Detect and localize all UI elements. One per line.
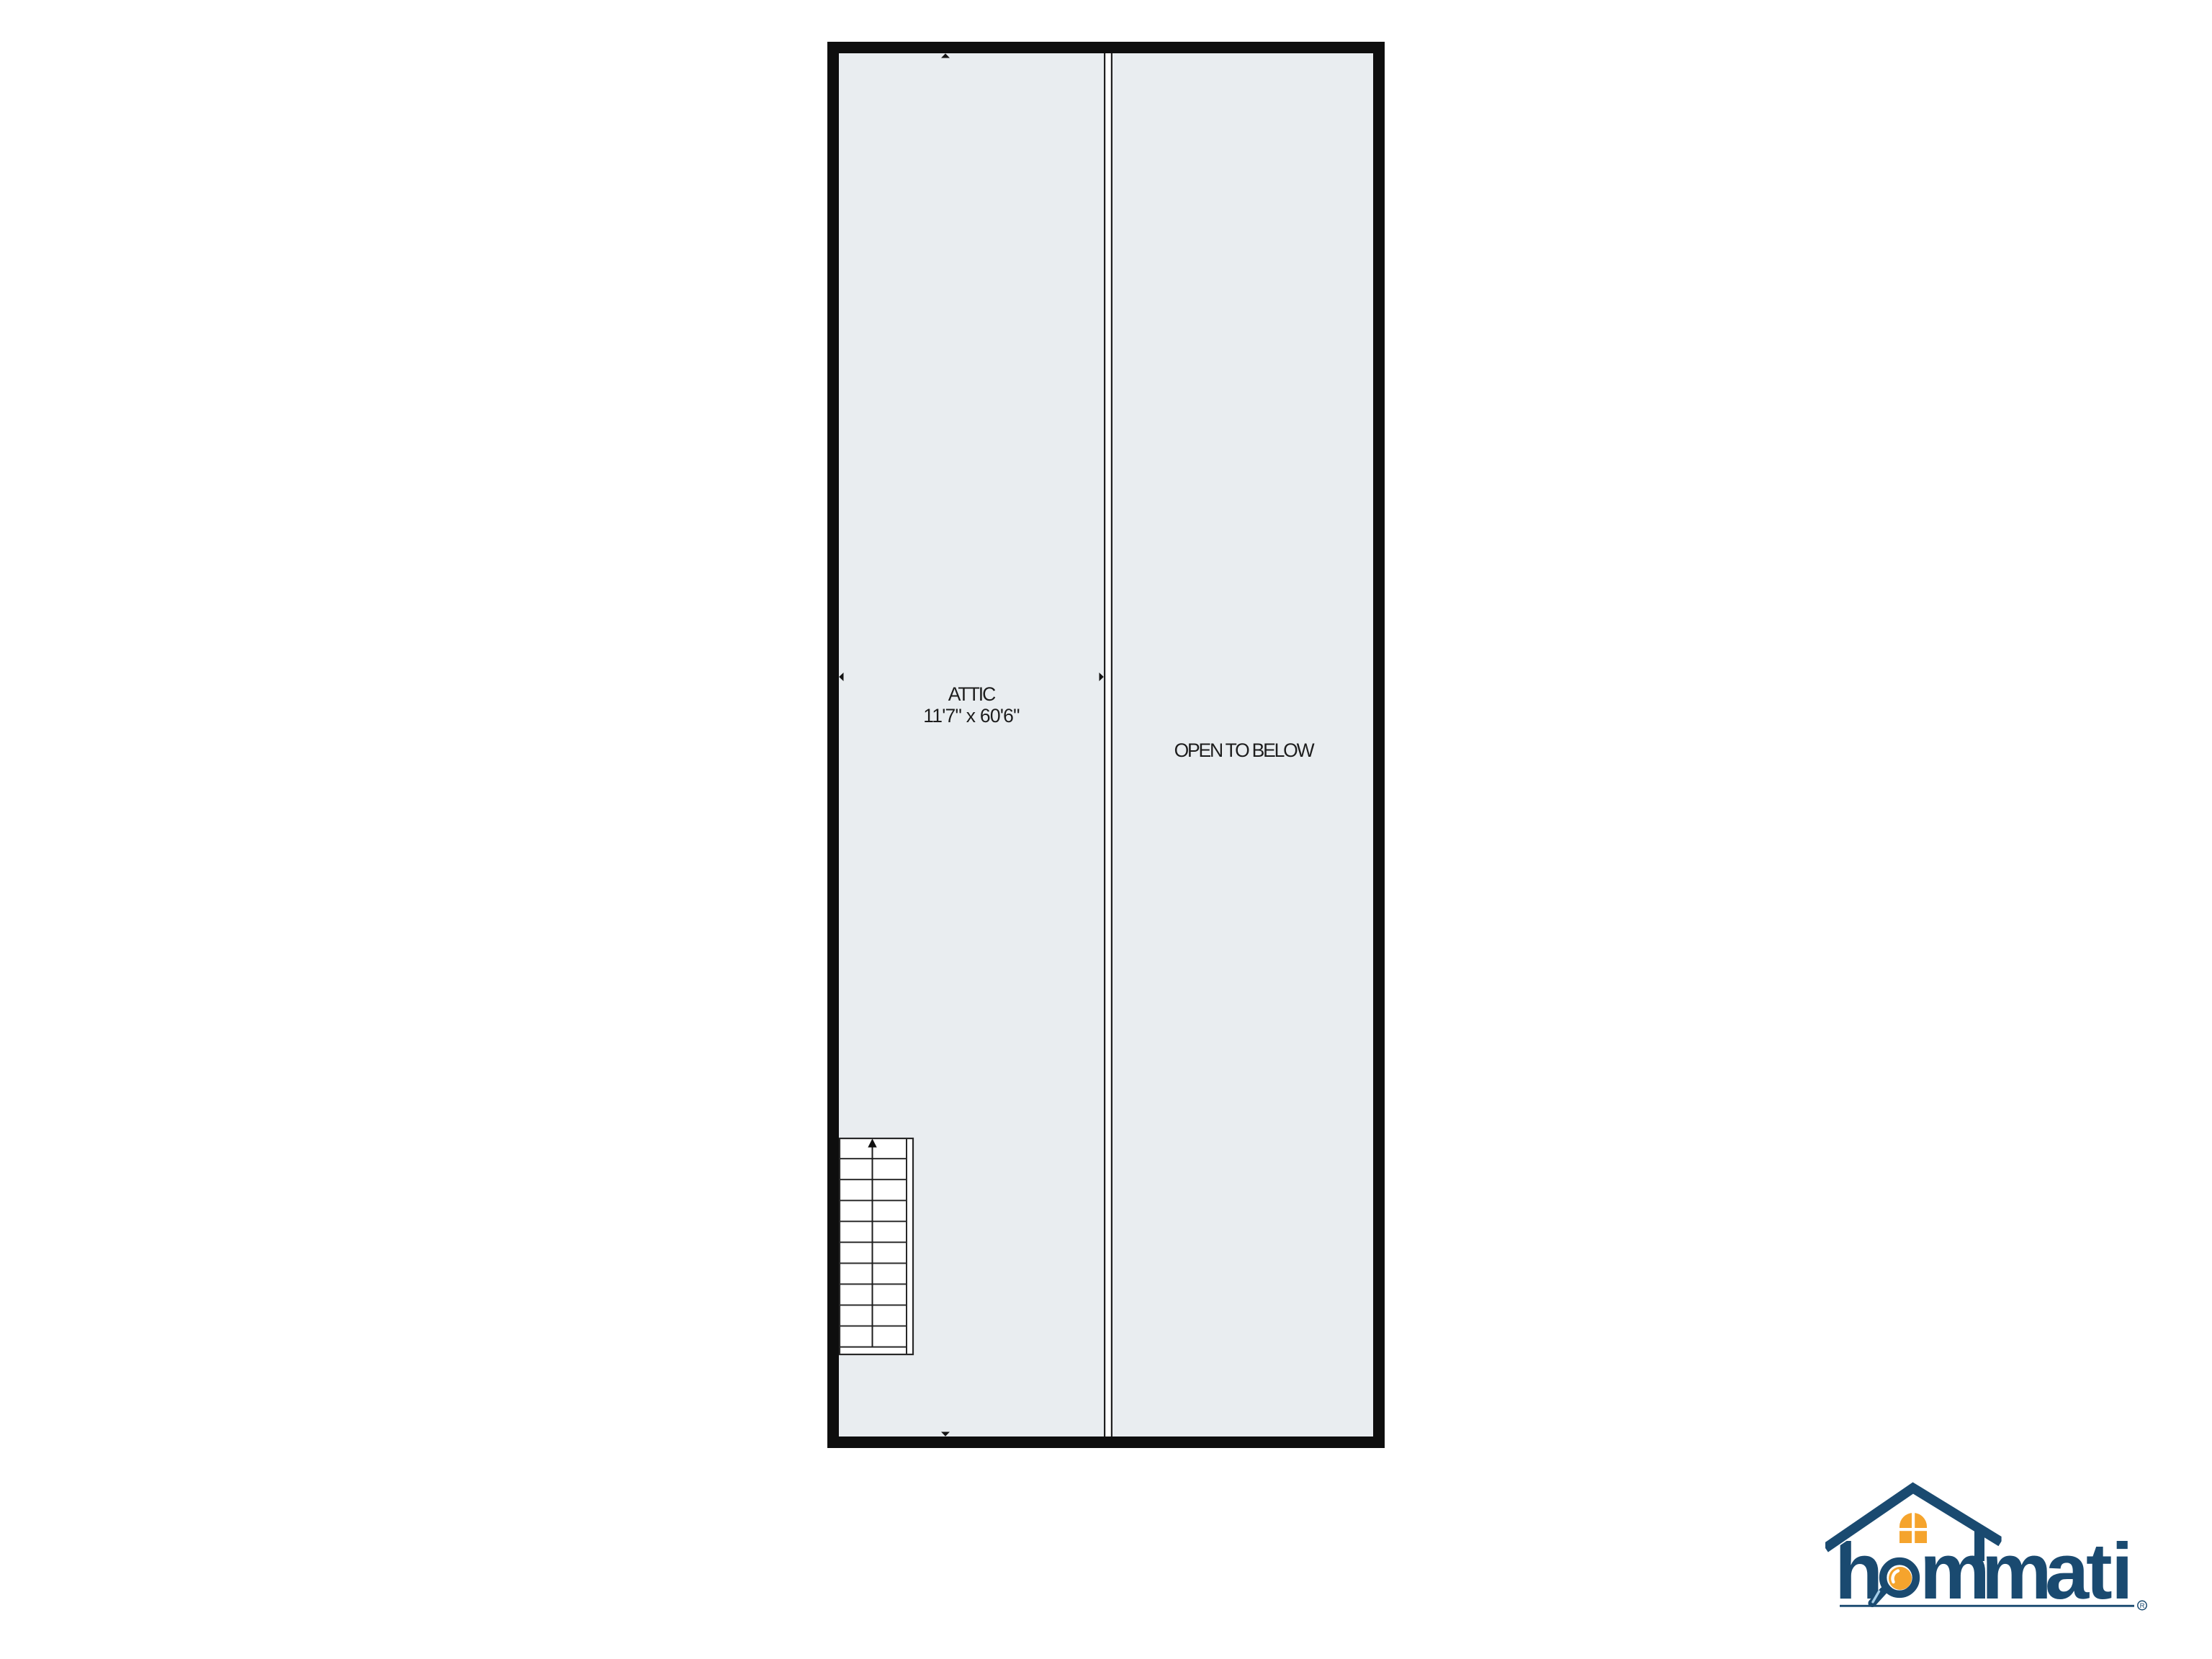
svg-text:i: i (2111, 1527, 2134, 1616)
svg-text:t: t (2086, 1527, 2113, 1616)
svg-text:R: R (2140, 1602, 2145, 1610)
svg-text:a: a (2045, 1527, 2090, 1616)
svg-text:mm: mm (1920, 1527, 2047, 1616)
svg-text:11'7" x 60'6": 11'7" x 60'6" (923, 705, 1020, 727)
svg-text:ATTIC: ATTIC (948, 683, 996, 705)
svg-text:OPEN TO BELOW: OPEN TO BELOW (1174, 739, 1315, 761)
